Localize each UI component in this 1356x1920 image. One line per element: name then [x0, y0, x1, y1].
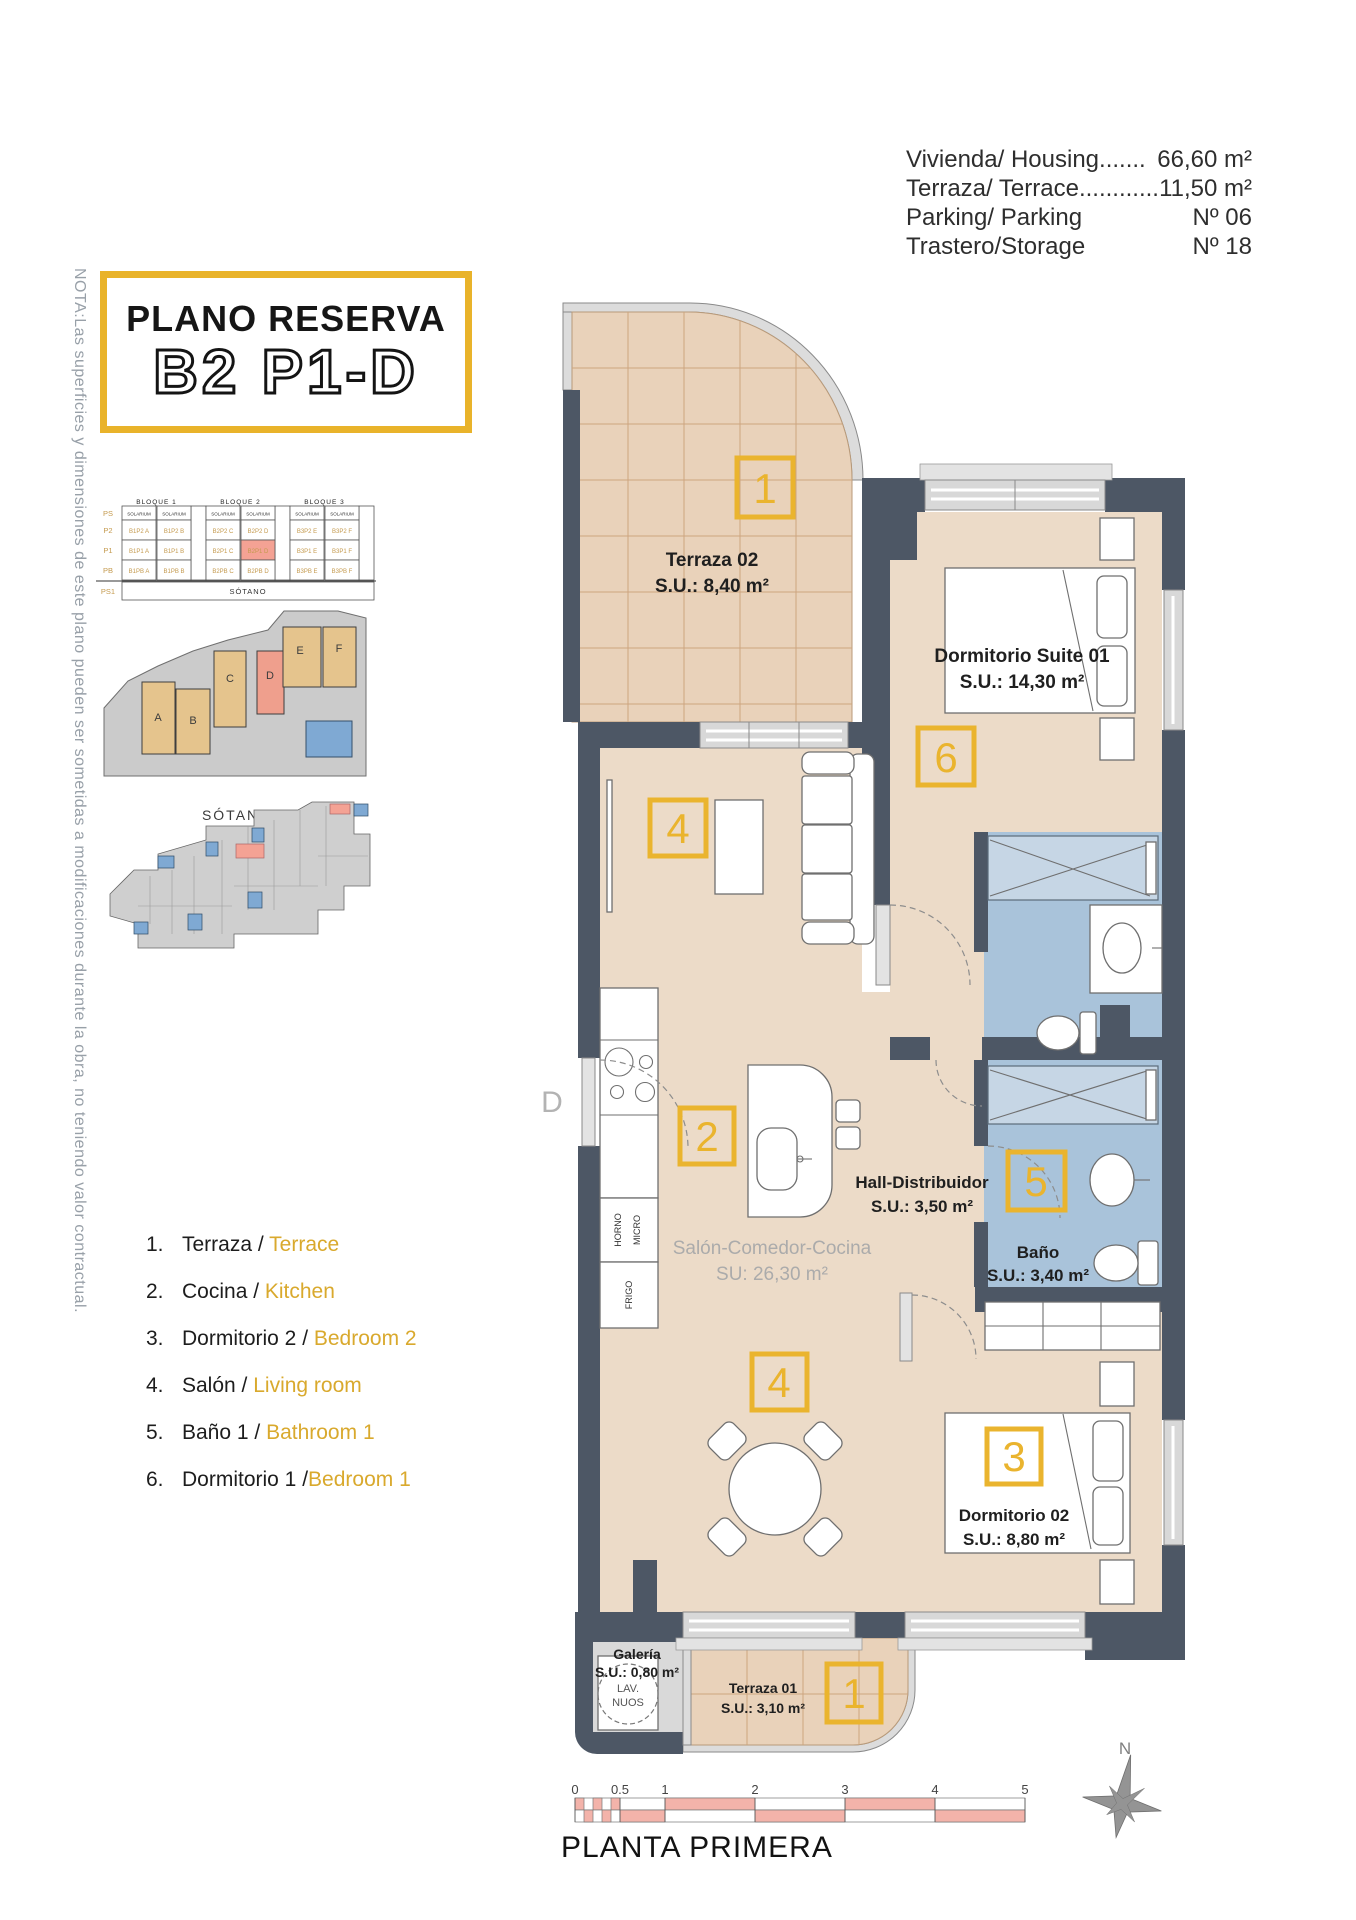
floor-title: PLANTA PRIMERA [561, 1831, 833, 1865]
svg-text:Terraza 02: Terraza 02 [666, 550, 759, 571]
floor-plan: HORNO MICRO FRIGO [450, 300, 1190, 1760]
svg-text:SOLARIUM: SOLARIUM [211, 512, 235, 517]
svg-text:Dormitorio 02: Dormitorio 02 [959, 1506, 1070, 1525]
svg-text:B1PB A: B1PB A [129, 569, 150, 575]
svg-text:C: C [226, 673, 234, 685]
svg-text:0.5: 0.5 [611, 1782, 629, 1797]
legend-item-2: 2.Cocina / Kitchen [146, 1280, 417, 1304]
block-elevation-diagram: BLOQUE 1 BLOQUE 2 BLOQUE 3 SOLARIUM SOLA… [94, 496, 378, 606]
compass-north-label: N [1119, 1739, 1131, 1758]
svg-text:S.U.: 3,40 m²: S.U.: 3,40 m² [987, 1266, 1089, 1285]
basement-plan-diagram: SÓTANO [102, 796, 382, 971]
svg-text:B3P2 E: B3P2 E [297, 529, 317, 535]
svg-text:4: 4 [767, 1359, 790, 1406]
suite-washbasin [1103, 923, 1141, 973]
legend-item-4: 4.Salón / Living room [146, 1374, 417, 1398]
svg-text:NUOS: NUOS [612, 1697, 644, 1709]
svg-text:Baño: Baño [1017, 1243, 1060, 1262]
svg-text:B3PB E: B3PB E [296, 569, 317, 575]
svg-text:B1P1 B: B1P1 B [164, 549, 184, 555]
svg-text:4: 4 [666, 805, 689, 852]
terrace-02 [563, 303, 863, 722]
svg-text:F: F [336, 643, 343, 655]
svg-text:3: 3 [1002, 1433, 1025, 1480]
svg-text:S.U.: 8,40 m²: S.U.: 8,40 m² [655, 576, 769, 597]
svg-text:3: 3 [841, 1782, 848, 1797]
svg-text:MICRO: MICRO [632, 1215, 642, 1245]
svg-text:B1P2 A: B1P2 A [129, 529, 149, 535]
unit-letter-at-entrance: D [541, 1086, 563, 1119]
svg-text:SOLARIUM: SOLARIUM [330, 512, 354, 517]
svg-text:B1PB B: B1PB B [163, 569, 184, 575]
svg-text:SÓTANO: SÓTANO [229, 587, 266, 596]
svg-text:BLOQUE 1: BLOQUE 1 [136, 499, 177, 506]
svg-text:2: 2 [695, 1113, 718, 1160]
pool [306, 721, 352, 757]
svg-text:Hall-Distribuidor: Hall-Distribuidor [855, 1173, 989, 1192]
svg-text:P1: P1 [103, 546, 112, 555]
shower [988, 1066, 1158, 1124]
washbasin [1090, 1154, 1134, 1206]
svg-text:5: 5 [1024, 1158, 1047, 1205]
scale-bar: 0 0.5 1 2 3 4 5 [565, 1782, 1035, 1826]
highlighted-block-d [257, 651, 284, 714]
svg-text:LAV.: LAV. [617, 1683, 639, 1695]
info-row-housing: Vivienda/ Housing.......66,60 m² [906, 145, 1252, 174]
info-row-terrace: Terraza/ Terrace............11,50 m² [906, 174, 1252, 203]
legend-item-5: 5.Baño 1 / Bathroom 1 [146, 1421, 417, 1445]
svg-text:6: 6 [934, 734, 957, 781]
legend-item-3: 3.Dormitorio 2 / Bedroom 2 [146, 1327, 417, 1351]
entrance-door [582, 1058, 595, 1146]
title-box: PLANO RESERVA B2 P1-D [100, 271, 472, 433]
suite-toilet [1037, 1016, 1079, 1050]
svg-text:E: E [296, 645, 303, 657]
svg-text:S.U.: 3,50 m²: S.U.: 3,50 m² [871, 1197, 973, 1216]
svg-text:5: 5 [1021, 1782, 1028, 1797]
reserved-storage-cell [236, 844, 264, 858]
svg-text:S.U.: 14,30 m²: S.U.: 14,30 m² [960, 672, 1085, 693]
svg-text:B2PB C: B2PB C [212, 569, 234, 575]
svg-text:B3PB F: B3PB F [332, 569, 353, 575]
coffee-table [715, 800, 763, 894]
svg-text:D: D [266, 670, 274, 682]
svg-text:1: 1 [842, 1670, 865, 1717]
svg-text:B1P1 A: B1P1 A [129, 549, 149, 555]
sofa [850, 754, 874, 944]
svg-text:B2PB D: B2PB D [247, 569, 269, 575]
svg-text:PS: PS [103, 509, 113, 518]
room-legend: 1.Terraza / Terrace 2.Cocina / Kitchen 3… [146, 1233, 417, 1515]
svg-text:BLOQUE 2: BLOQUE 2 [220, 499, 261, 506]
svg-text:S.U.: 0,80 m²: S.U.: 0,80 m² [595, 1664, 679, 1680]
svg-text:Terraza 01: Terraza 01 [729, 1680, 797, 1696]
svg-text:S.U.: 8,80 m²: S.U.: 8,80 m² [963, 1530, 1065, 1549]
info-row-storage: Trastero/StorageNº 18 [906, 232, 1252, 261]
svg-text:PB: PB [103, 566, 113, 575]
svg-text:1: 1 [753, 465, 776, 512]
svg-text:S.U.: 3,10 m²: S.U.: 3,10 m² [721, 1700, 805, 1716]
svg-text:B3P1 E: B3P1 E [297, 549, 317, 555]
unit-code: B2 P1-D [153, 340, 419, 405]
svg-text:SOLARIUM: SOLARIUM [162, 512, 186, 517]
svg-text:SOLARIUM: SOLARIUM [127, 512, 151, 517]
svg-text:B2P1 D: B2P1 D [248, 549, 269, 555]
legend-item-6: 6.Dormitorio 1 /Bedroom 1 [146, 1468, 417, 1492]
dining-table [729, 1443, 821, 1535]
legend-item-1: 1.Terraza / Terrace [146, 1233, 417, 1257]
svg-text:B3P1 F: B3P1 F [332, 549, 352, 555]
svg-text:SOLARIUM: SOLARIUM [295, 512, 319, 517]
svg-text:B2P2 C: B2P2 C [213, 529, 234, 535]
area-info: Vivienda/ Housing.......66,60 m² Terraza… [906, 145, 1252, 261]
svg-text:FRIGO: FRIGO [624, 1281, 634, 1310]
info-row-parking: Parking/ ParkingNº 06 [906, 203, 1252, 232]
toilet [1094, 1245, 1138, 1281]
svg-text:B: B [189, 715, 196, 727]
svg-text:A: A [154, 712, 162, 724]
island-sink [757, 1128, 797, 1190]
svg-text:BLOQUE 3: BLOQUE 3 [304, 499, 345, 506]
svg-text:HORNO: HORNO [613, 1213, 623, 1247]
svg-text:Dormitorio Suite 01: Dormitorio Suite 01 [934, 646, 1110, 667]
plan-title: PLANO RESERVA [126, 298, 446, 340]
oven-microwave [600, 1198, 658, 1262]
svg-text:Galería: Galería [613, 1646, 661, 1662]
svg-text:2: 2 [751, 1782, 758, 1797]
svg-text:B2P2 D: B2P2 D [248, 529, 269, 535]
svg-text:B1P2 B: B1P2 B [164, 529, 184, 535]
svg-text:B2P1 C: B2P1 C [213, 549, 234, 555]
svg-text:Salón-Comedor-Cocina: Salón-Comedor-Cocina [673, 1238, 872, 1259]
site-plan-diagram: A B C D E F [98, 604, 376, 796]
svg-text:0: 0 [571, 1782, 578, 1797]
vertical-disclaimer-note: NOTA:Las superficies y dimensiones de es… [70, 268, 88, 1418]
svg-text:SU: 26,30 m²: SU: 26,30 m² [716, 1264, 828, 1285]
svg-text:P2: P2 [103, 526, 112, 535]
svg-text:1: 1 [661, 1782, 668, 1797]
svg-text:B3P2 F: B3P2 F [332, 529, 352, 535]
svg-text:SOLARIUM: SOLARIUM [246, 512, 270, 517]
svg-text:PS1: PS1 [101, 587, 115, 596]
svg-text:4: 4 [931, 1782, 938, 1797]
compass-icon: N [1070, 1730, 1180, 1850]
